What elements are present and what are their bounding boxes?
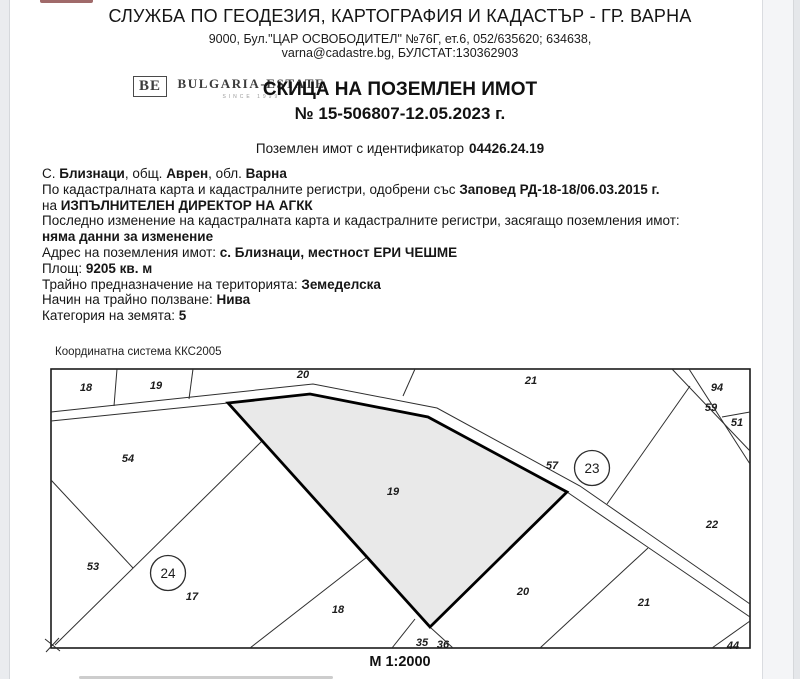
- parcel-label-59: 59: [705, 402, 718, 414]
- parcel-label-53: 53: [87, 561, 99, 573]
- parcel-label-21: 21: [637, 597, 650, 609]
- parcel-label-94: 94: [711, 382, 723, 394]
- parcel-label-51: 51: [731, 417, 743, 429]
- quarter-label-24: 24: [160, 566, 176, 581]
- quarter-label-23: 23: [584, 461, 599, 476]
- parcel-label-54: 54: [122, 453, 134, 465]
- parcel-label-19: 19: [150, 380, 163, 392]
- parcel-label-36: 36: [437, 639, 450, 651]
- parcel-label-17: 17: [186, 591, 199, 603]
- parcel-label-35: 35: [416, 637, 429, 649]
- parcel-label-18: 18: [80, 382, 93, 394]
- cadastre-document-page: СЛУЖБА ПО ГЕОДЕЗИЯ, КАРТОГРАФИЯ И КАДАСТ…: [0, 0, 800, 679]
- parcel-label-44: 44: [726, 640, 739, 652]
- parcel-label-57: 57: [546, 460, 559, 472]
- parcel-label-22: 22: [705, 519, 718, 531]
- map-scale-label: М 1:2000: [5, 654, 795, 670]
- parcel-label-19: 19: [387, 486, 400, 498]
- parcel-label-18: 18: [332, 604, 345, 616]
- parcel-label-20: 20: [516, 586, 530, 598]
- cadastral-map: 18192021945951572254531719182021353644 2…: [0, 0, 800, 679]
- parcel-label-20: 20: [296, 369, 310, 381]
- parcel-label-21: 21: [524, 375, 537, 387]
